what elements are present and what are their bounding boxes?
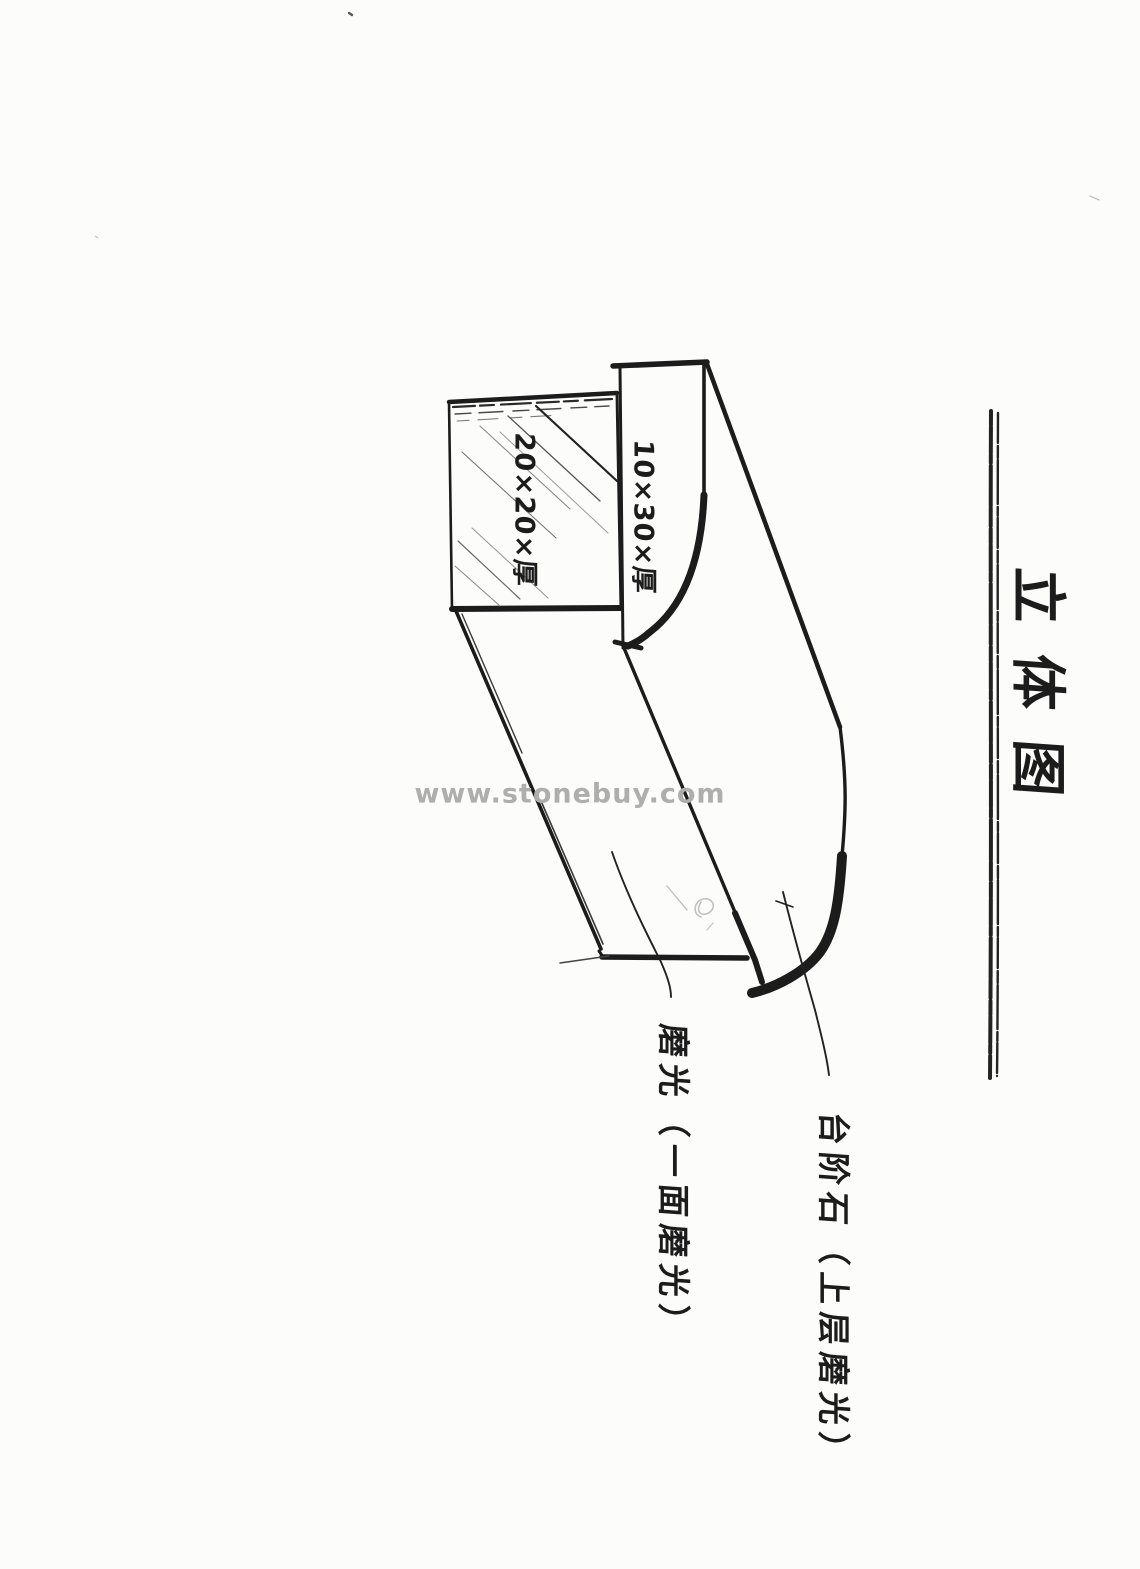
scanned-sketch-page: 20×20×厚 10×30×厚 立体图 磨光（一面磨光） 台阶石（上层磨光） w… [0, 0, 1140, 1569]
watermark-text: www.stonebuy.com [414, 779, 725, 810]
dimension-label-front-face: 10×30×厚 [627, 438, 666, 595]
annotation-polished-face: 磨光（一面磨光） [652, 1022, 700, 1345]
dimension-label-top-face: 20×20×厚 [508, 431, 547, 588]
leader-line-left [612, 852, 671, 997]
title-underline [990, 411, 998, 1078]
annotation-step-stone: 台阶石（上层磨光） [812, 1110, 860, 1473]
bullnose-edge-lower [752, 856, 842, 993]
scan-specks [95, 13, 1099, 238]
leader-lines [612, 852, 829, 1075]
leader-tick [776, 901, 793, 907]
faint-scribble [667, 886, 713, 930]
page-title: 立体图 [1002, 565, 1083, 829]
leader-line-right [783, 892, 829, 1075]
